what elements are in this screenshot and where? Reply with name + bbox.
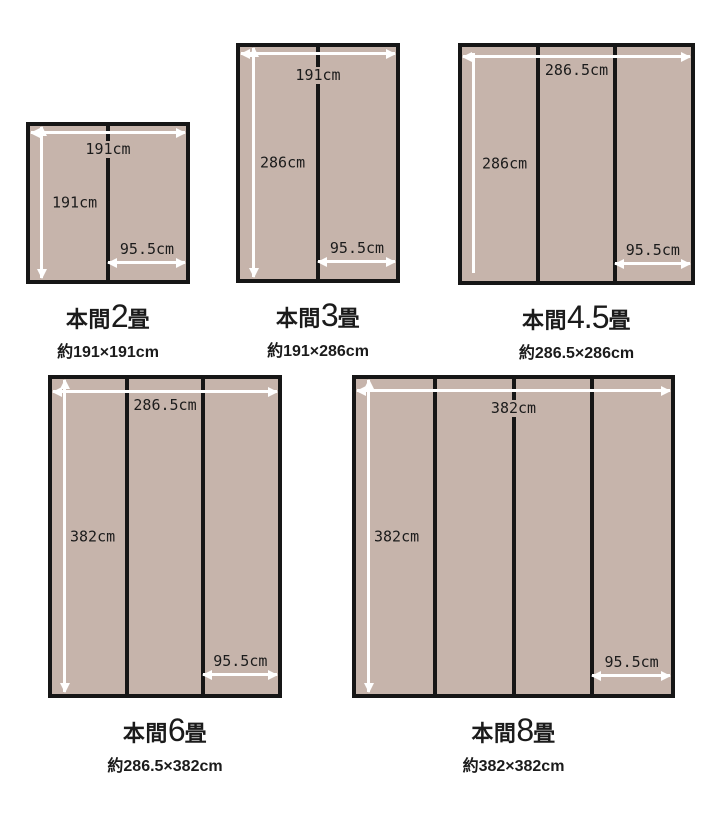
width-arrow	[53, 390, 277, 393]
mat-divider	[125, 379, 129, 694]
mat-width-arrow	[592, 674, 670, 677]
width-dimension-label: 286.5cm	[130, 397, 199, 414]
mat-width-arrow	[203, 673, 277, 676]
mat-divider	[433, 379, 437, 694]
mat-width-dimension-label: 95.5cm	[318, 240, 396, 257]
height-arrow	[63, 380, 66, 692]
height-dimension-label: 191cm	[50, 194, 99, 211]
title-size-number: 8	[516, 712, 533, 748]
rug-outline: 382cm 382cm 95.5cm	[352, 375, 675, 698]
title-suffix: 畳	[533, 721, 556, 746]
diagram-title: 本間8畳	[352, 711, 675, 749]
tatami-size-chart: 191cm 191cm 95.5cm 本間2畳 約191×191cm 191cm	[0, 0, 720, 817]
mat-width-dimension-label: 95.5cm	[615, 242, 691, 259]
rug-mat: 382cm 382cm 95.5cm	[356, 379, 671, 694]
height-dimension-label: 382cm	[68, 528, 117, 545]
width-arrow	[241, 52, 395, 55]
diagram-caption: 本間8畳 約382×382cm	[352, 711, 675, 776]
width-dimension-label: 191cm	[82, 141, 133, 158]
width-arrow	[463, 55, 690, 58]
title-prefix: 本間	[471, 721, 516, 746]
width-arrow	[31, 131, 185, 134]
mat-width-arrow	[108, 261, 185, 264]
height-dimension-label: 286cm	[480, 155, 529, 172]
height-arrow	[367, 380, 370, 692]
width-dimension-label: 191cm	[292, 67, 343, 84]
mat-width-dimension-label: 95.5cm	[108, 241, 186, 258]
width-dimension-label: 286.5cm	[542, 62, 611, 79]
width-arrow	[357, 389, 670, 392]
mat-divider	[536, 47, 540, 281]
height-arrow	[252, 48, 255, 277]
mat-width-arrow	[318, 260, 395, 263]
height-arrow	[40, 127, 43, 278]
mat-divider	[512, 379, 516, 694]
mat-width-dimension-label: 95.5cm	[592, 654, 671, 671]
height-dimension-label: 382cm	[372, 528, 421, 545]
mat-width-arrow	[615, 262, 690, 265]
width-dimension-label: 382cm	[488, 400, 539, 417]
diagram-subtitle: 約382×382cm	[352, 752, 675, 776]
mat-width-dimension-label: 95.5cm	[203, 653, 278, 670]
height-dimension-label: 286cm	[258, 154, 307, 171]
height-arrow	[472, 53, 475, 273]
mat-divider	[201, 379, 205, 694]
mat-divider	[590, 379, 594, 694]
